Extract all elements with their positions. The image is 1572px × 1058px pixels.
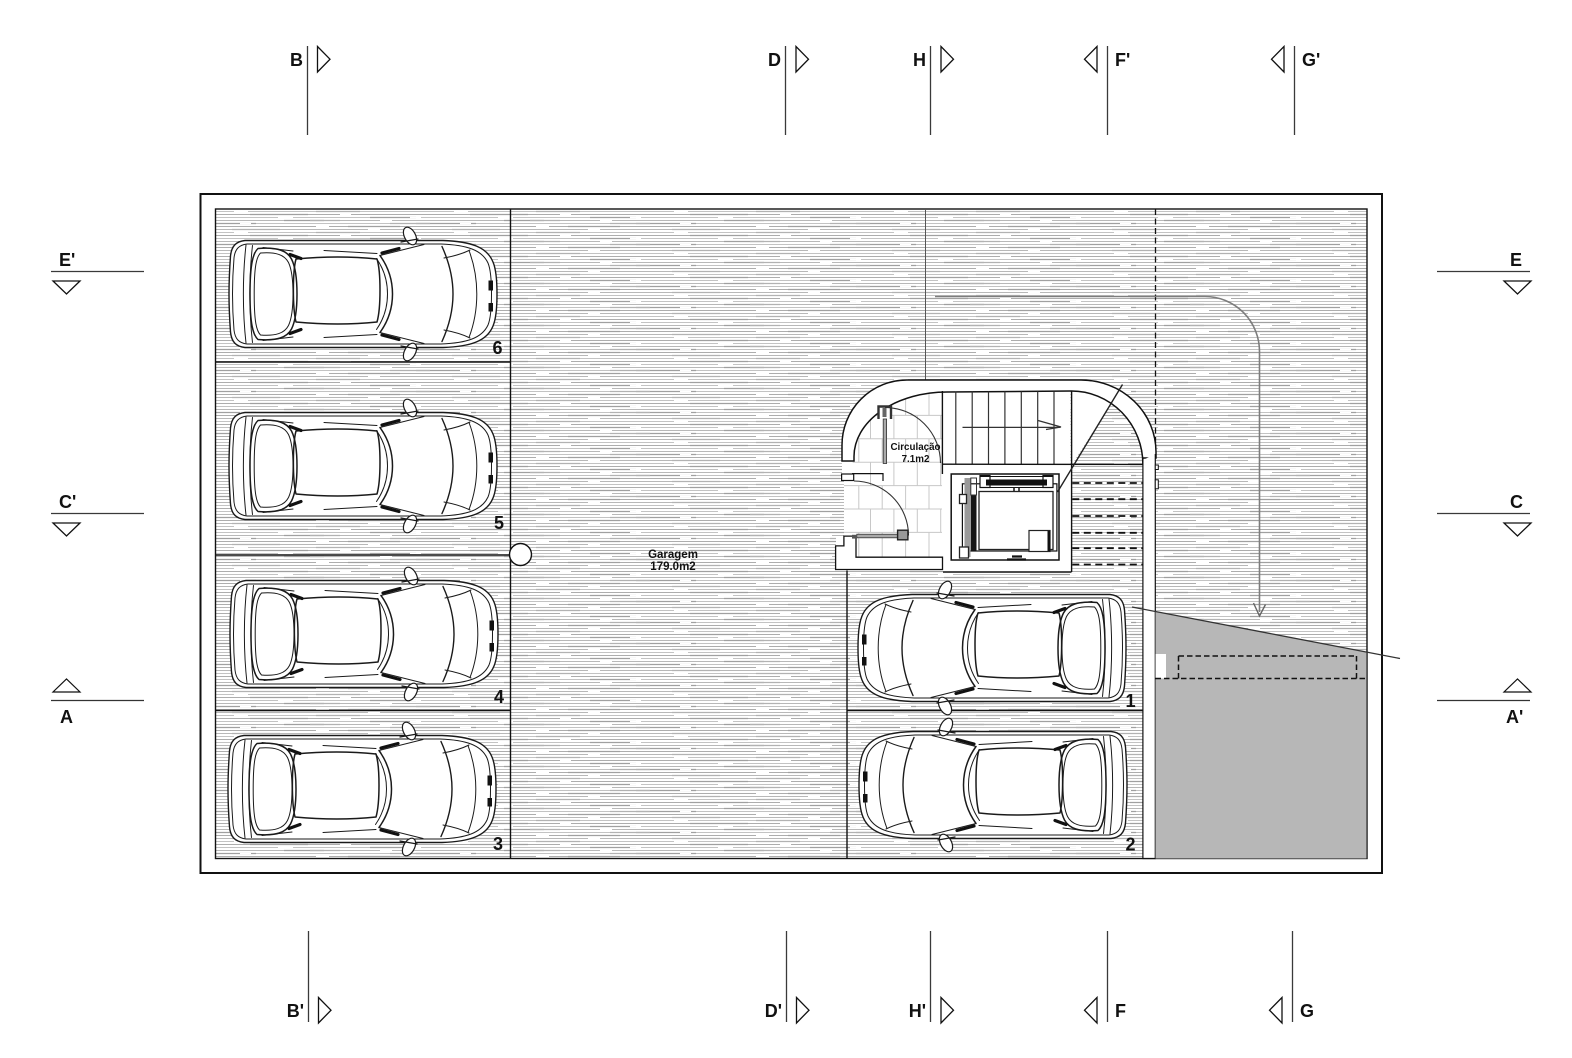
svg-text:C': C' — [59, 492, 76, 512]
svg-text:5: 5 — [494, 513, 504, 533]
svg-text:E': E' — [59, 250, 75, 270]
svg-text:G: G — [1300, 1001, 1314, 1021]
svg-text:B': B' — [287, 1001, 304, 1021]
svg-text:B: B — [290, 50, 303, 70]
svg-text:A': A' — [1506, 707, 1523, 727]
svg-text:A: A — [60, 707, 73, 727]
svg-text:3: 3 — [493, 834, 503, 854]
svg-text:F': F' — [1115, 50, 1130, 70]
svg-text:7.1m2: 7.1m2 — [902, 454, 930, 465]
svg-text:H': H' — [909, 1001, 926, 1021]
svg-text:E: E — [1510, 250, 1522, 270]
svg-text:2: 2 — [1125, 835, 1135, 855]
svg-text:C: C — [1510, 492, 1523, 512]
svg-text:F: F — [1115, 1001, 1126, 1021]
svg-text:179.0m2: 179.0m2 — [650, 561, 695, 573]
svg-text:H: H — [913, 50, 926, 70]
svg-text:1: 1 — [1125, 691, 1135, 711]
svg-text:4: 4 — [494, 687, 504, 707]
svg-text:D': D' — [765, 1001, 782, 1021]
svg-text:G': G' — [1302, 50, 1320, 70]
svg-text:6: 6 — [492, 338, 502, 358]
svg-text:Circulação: Circulação — [890, 442, 940, 453]
svg-text:D: D — [768, 50, 781, 70]
svg-text:Garagem: Garagem — [648, 549, 698, 561]
